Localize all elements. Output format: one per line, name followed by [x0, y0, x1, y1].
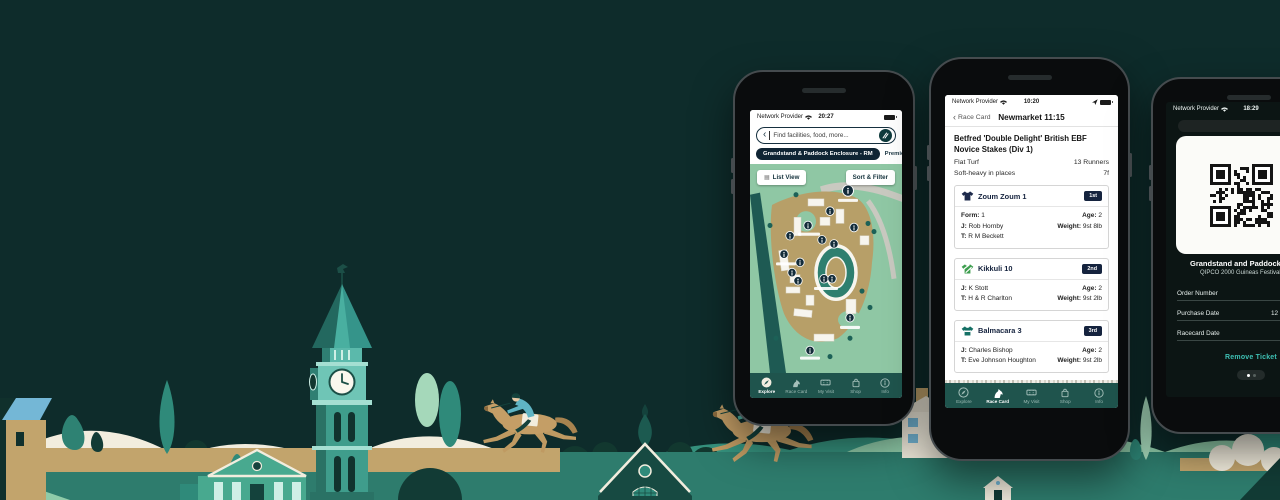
map-pin[interactable] — [788, 268, 796, 277]
status-bar: Network Provider 18:29 — [1166, 102, 1280, 116]
horse-head-icon — [992, 387, 1004, 398]
ticket-subtitle: QIPCO 2000 Guineas Festival — [1166, 270, 1280, 276]
sort-filter-button[interactable]: Sort & Filter — [846, 170, 895, 185]
carrier-label: Network Provider — [757, 114, 812, 120]
tab-race-card[interactable]: Race Card — [983, 387, 1013, 404]
tickets-icon — [1026, 387, 1037, 398]
ticket-title: Grandstand and Paddock - Adu — [1166, 259, 1280, 268]
map-pin[interactable] — [850, 223, 858, 232]
battery-icon — [884, 115, 895, 120]
ticket-screen: Network Provider 18:29 Grandstand and Pa… — [1166, 102, 1280, 397]
hero-banner: Network Provider 20:27 ‹ Find facilities… — [0, 0, 1280, 500]
search-placeholder: Find facilities, food, more... — [773, 132, 876, 139]
horse-head-icon — [791, 377, 801, 388]
list-view-button[interactable]: ▦ List View — [757, 170, 806, 185]
volume-button — [731, 158, 734, 173]
map-pin[interactable] — [796, 258, 804, 267]
horse-card[interactable]: Kikkuli 10 2nd J: K Stott T: H & R Charl… — [954, 258, 1109, 311]
tab-info[interactable]: Info — [1084, 387, 1114, 404]
map-pin[interactable] — [846, 313, 854, 322]
map-pin[interactable] — [794, 276, 802, 285]
speaker-slot — [802, 88, 846, 93]
info-icon — [1094, 387, 1104, 398]
text-caret — [769, 131, 770, 140]
carrier-label: Network Provider — [952, 99, 1007, 105]
position-badge: 1st — [1084, 191, 1102, 201]
tab-bar: Explore Race Card My Visit Shop Info — [750, 373, 902, 398]
speaker-slot — [1227, 95, 1271, 100]
map-pin[interactable] — [818, 236, 826, 245]
silks-icon — [961, 326, 974, 336]
map-pin[interactable] — [843, 185, 854, 196]
map-pin[interactable] — [828, 274, 836, 283]
field-label: Purchase Date — [1177, 310, 1219, 317]
carrier-label: Network Provider — [1173, 106, 1228, 112]
field-label: Racecard Date — [1177, 330, 1220, 337]
field-value: 12 De — [1271, 310, 1280, 317]
map-pin[interactable] — [786, 231, 794, 240]
racehorse-left-illustration — [483, 393, 577, 453]
power-button — [914, 166, 917, 190]
volume-button — [1149, 186, 1152, 201]
phone-explore: Network Provider 20:27 ‹ Find facilities… — [733, 70, 915, 426]
race-name: Betfred 'Double Delight' British EBF Nov… — [954, 133, 1109, 155]
horse-name: Kikkuli 10 — [978, 264, 1013, 273]
compass-icon — [761, 377, 772, 388]
tab-shop[interactable]: Shop — [1050, 387, 1080, 404]
race-surface: Flat Turf — [954, 158, 979, 169]
conifer-tree — [159, 380, 174, 454]
map-pin[interactable] — [826, 207, 834, 216]
speaker-slot — [1008, 75, 1052, 80]
clock-tower-illustration — [310, 264, 375, 500]
horse-card[interactable]: Balmacara 3 3rd J: Charles Bishop T: Eve… — [954, 320, 1109, 373]
ticket-pager[interactable] — [1237, 370, 1265, 380]
back-chevron-icon[interactable]: ‹ — [763, 130, 766, 140]
info-icon — [880, 377, 890, 388]
phone-racecard: Network Provider 10:20 ‹ Race Card Newma… — [929, 57, 1130, 461]
app-logo-icon — [879, 129, 892, 142]
compass-icon — [958, 387, 969, 398]
premier-enclosure-chip[interactable]: Premier Enclos — [885, 151, 902, 157]
bush — [62, 415, 85, 450]
wifi-icon — [805, 115, 812, 120]
horse-name: Zoum Zoum 1 — [978, 192, 1026, 201]
back-chevron-icon: ‹ — [953, 113, 956, 122]
race-distance: 7f — [1103, 169, 1109, 180]
silks-icon — [961, 264, 974, 274]
venue-map-graphic — [750, 164, 902, 373]
tab-explore[interactable]: Explore — [949, 387, 979, 404]
back-button[interactable]: ‹ Race Card — [953, 114, 991, 122]
shopping-bag-icon — [1060, 387, 1070, 398]
explore-screen: Network Provider 20:27 ‹ Find facilities… — [750, 110, 902, 398]
tab-shop[interactable]: Shop — [841, 377, 871, 394]
racecard-screen: Network Provider 10:20 ‹ Race Card Newma… — [945, 95, 1118, 408]
enclosure-chips: Grandstand & Paddock Enclosure - RM Prem… — [750, 146, 902, 164]
position-badge: 3rd — [1084, 326, 1102, 336]
bush — [1130, 439, 1141, 460]
map-pin[interactable] — [780, 250, 788, 259]
ticket-field-row: Purchase Date 12 De — [1177, 301, 1280, 321]
list-view-label: List View — [773, 174, 800, 181]
enclosure-chip[interactable]: Grandstand & Paddock Enclosure - RM — [756, 148, 880, 160]
status-bar: Network Provider 10:20 — [945, 95, 1118, 109]
horse-name: Balmacara 3 — [978, 326, 1022, 335]
ticket-field-row: Order Number — [1177, 281, 1280, 301]
map-pin[interactable] — [806, 346, 814, 355]
wifi-icon — [1000, 100, 1007, 105]
ticket-fields: Order Number Purchase Date 12 De Racecar… — [1177, 281, 1280, 341]
racecard-header: ‹ Race Card Newmarket 11:15 — [945, 109, 1118, 127]
silks-icon — [961, 191, 974, 201]
power-button — [1129, 153, 1132, 177]
tab-bar: Explore Race Card My Visit Shop Info — [945, 383, 1118, 408]
race-info: Betfred 'Double Delight' British EBF Nov… — [945, 127, 1118, 183]
stable-building — [0, 398, 52, 500]
volume-button — [1149, 165, 1152, 180]
wifi-icon — [1221, 107, 1228, 112]
tab-race-card[interactable]: Race Card — [782, 377, 812, 394]
bush — [415, 373, 439, 427]
bush — [439, 381, 461, 447]
tab-my-visit[interactable]: My Visit — [811, 377, 841, 394]
map-pin[interactable] — [830, 240, 838, 249]
tickets-icon — [820, 377, 831, 388]
ticket-field-row: Racecard Date — [1177, 321, 1280, 341]
venue-map[interactable]: ▦ List View Sort & Filter — [750, 164, 902, 373]
pager-dot — [1247, 374, 1250, 377]
qr-card — [1176, 136, 1280, 254]
race-going: Soft-heavy in places — [954, 169, 1015, 180]
stacked-ticket-edge[interactable] — [1178, 120, 1280, 132]
qr-code — [1210, 164, 1273, 227]
battery-icon — [1100, 100, 1111, 105]
field-label: Order Number — [1177, 290, 1218, 297]
pager-dot — [1253, 374, 1256, 377]
tab-my-visit[interactable]: My Visit — [1016, 387, 1046, 404]
location-arrow-icon — [1092, 99, 1098, 105]
shopping-bag-icon — [851, 377, 861, 388]
tab-info[interactable]: Info — [870, 377, 900, 394]
phone-ticket: Network Provider 18:29 Grandstand and Pa… — [1151, 77, 1280, 434]
volume-button — [927, 145, 930, 160]
race-runners: 13 Runners — [1074, 158, 1109, 169]
horse-card[interactable]: Zoum Zoum 1 1st Form: 1 J: Rob Hornby T:… — [954, 185, 1109, 249]
sort-filter-label: Sort & Filter — [853, 174, 888, 181]
volume-button — [731, 179, 734, 194]
map-pin[interactable] — [820, 274, 828, 283]
grid-icon: ▦ — [764, 175, 770, 181]
position-badge: 2nd — [1082, 264, 1102, 274]
search-row: ‹ Find facilities, food, more... — [750, 124, 902, 146]
remove-ticket-button[interactable]: Remove Ticket — [1166, 354, 1280, 361]
racecard-content: Betfred 'Double Delight' British EBF Nov… — [945, 127, 1118, 383]
map-pin[interactable] — [804, 221, 812, 230]
tab-explore[interactable]: Explore — [752, 377, 782, 394]
volume-button — [927, 166, 930, 181]
search-input[interactable]: ‹ Find facilities, food, more... — [756, 127, 896, 144]
status-bar: Network Provider 20:27 — [750, 110, 902, 124]
